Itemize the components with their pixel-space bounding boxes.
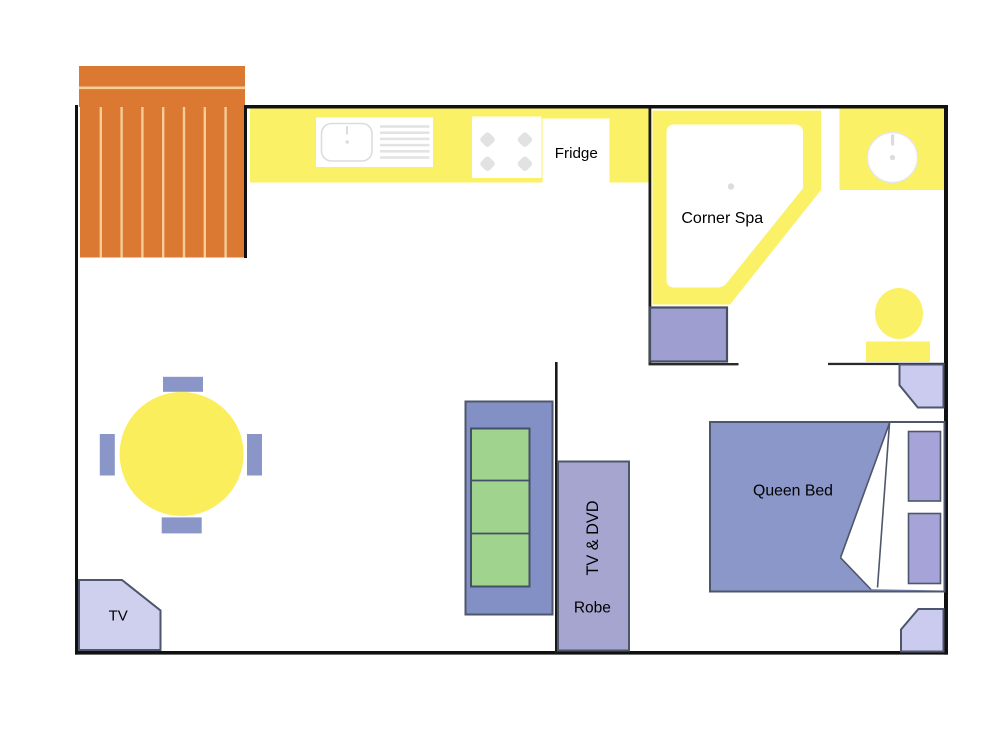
svg-text:Fridge: Fridge <box>555 145 598 162</box>
svg-text:Robe: Robe <box>574 600 611 617</box>
svg-text:Corner Spa: Corner Spa <box>681 210 763 227</box>
svg-text:TV: TV <box>109 607 128 624</box>
svg-text:TV & DVD: TV & DVD <box>584 500 602 575</box>
svg-text:Queen Bed: Queen Bed <box>753 482 833 499</box>
